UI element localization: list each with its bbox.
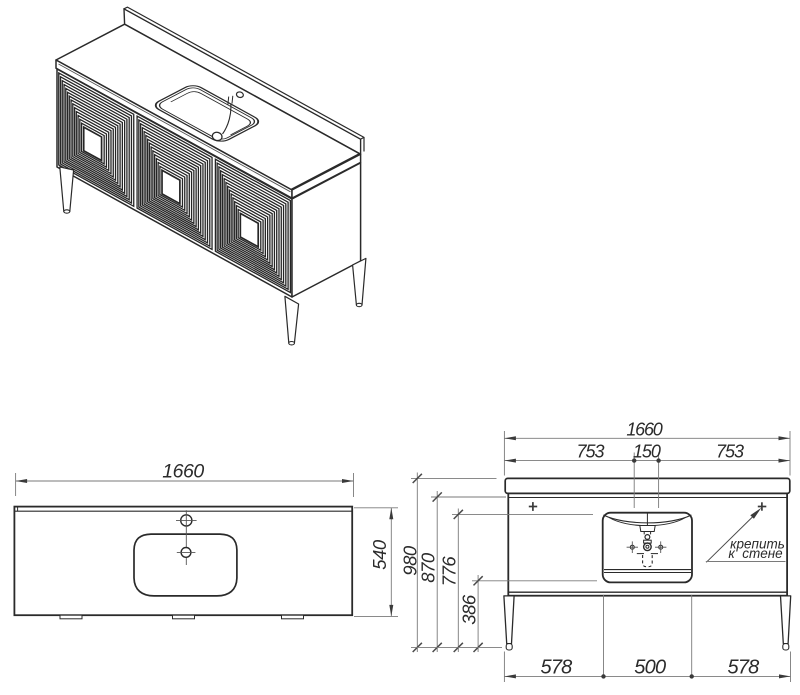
svg-text:578: 578 xyxy=(541,657,573,679)
svg-text:1660: 1660 xyxy=(626,420,662,440)
svg-text:870: 870 xyxy=(418,552,439,583)
svg-text:386: 386 xyxy=(459,594,480,625)
svg-text:578: 578 xyxy=(728,657,760,679)
svg-text:753: 753 xyxy=(716,442,744,462)
svg-text:753: 753 xyxy=(576,442,604,462)
svg-text:к стене: к стене xyxy=(728,546,782,561)
svg-text:1660: 1660 xyxy=(162,461,204,483)
svg-text:540: 540 xyxy=(369,539,390,570)
svg-text:150: 150 xyxy=(633,442,661,462)
svg-text:776: 776 xyxy=(439,556,460,587)
svg-text:500: 500 xyxy=(634,657,666,679)
